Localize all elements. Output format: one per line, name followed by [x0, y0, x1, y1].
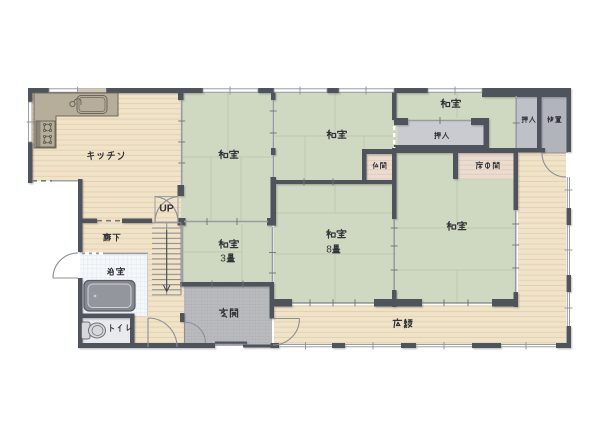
svg-text:UP: UP	[159, 203, 174, 215]
svg-text:8: 8	[326, 245, 332, 256]
svg-text:3: 3	[220, 254, 226, 265]
